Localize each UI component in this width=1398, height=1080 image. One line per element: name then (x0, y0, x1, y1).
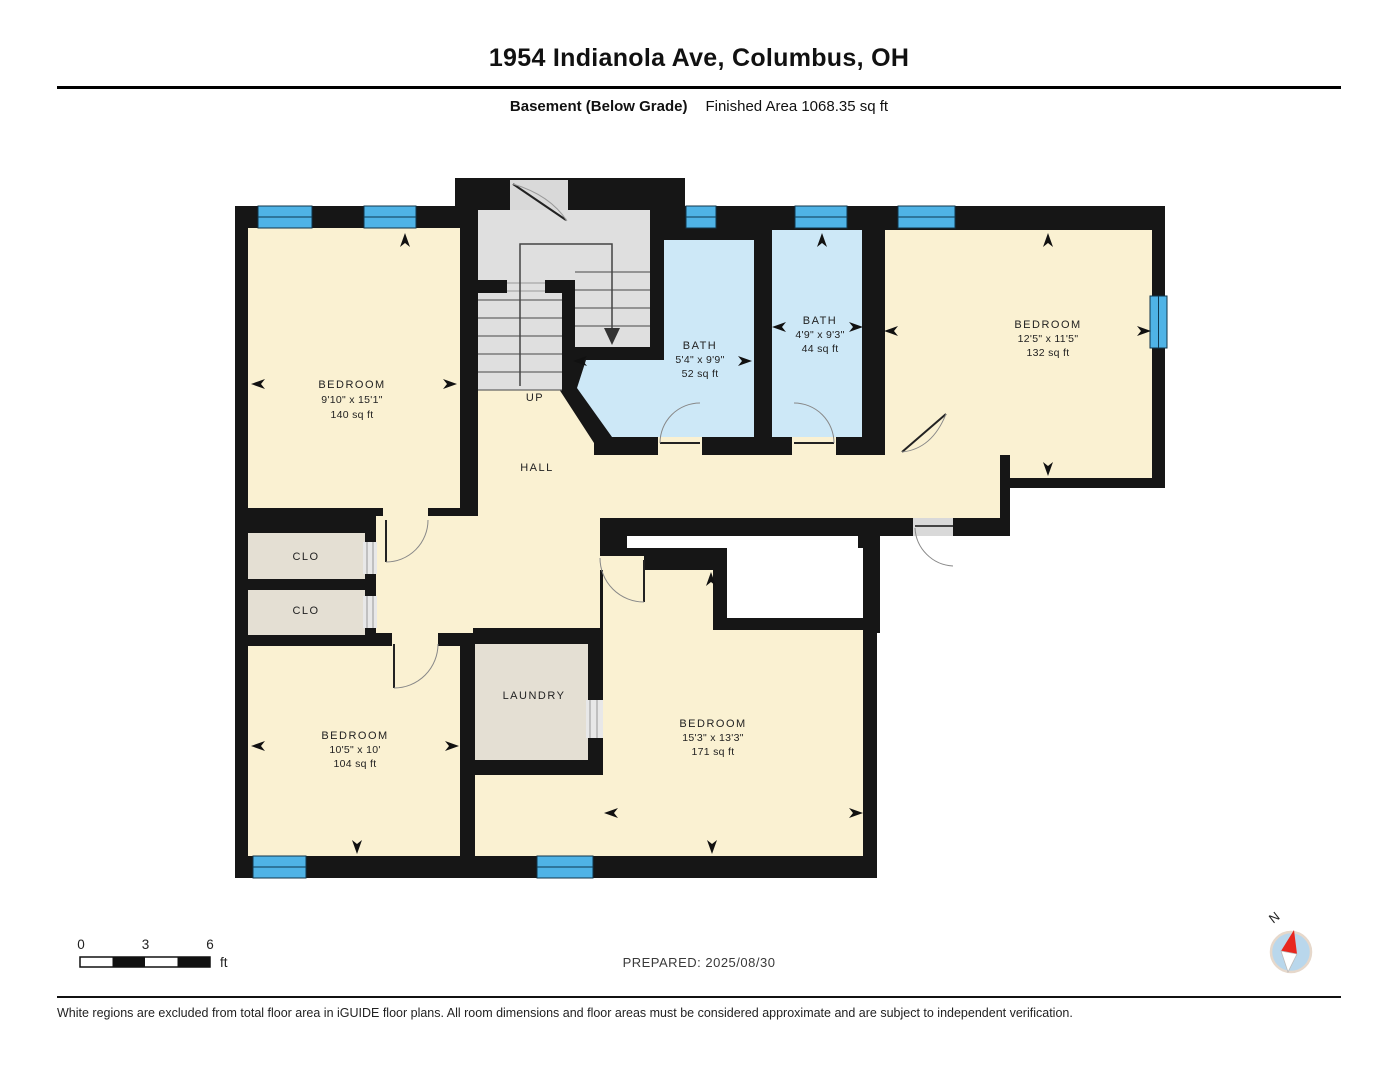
room-label-hall: HALL (520, 462, 554, 474)
room-hall-corridor (376, 516, 600, 633)
svg-text:12'5" x 11'5": 12'5" x 11'5" (1018, 333, 1079, 345)
compass: N (1266, 909, 1311, 972)
scale-bar: 0 3 6 ft (77, 937, 228, 970)
svg-text:BATH: BATH (803, 315, 838, 327)
floorplan-page: 1954 Indianola Ave, Columbus, OH Basemen… (0, 0, 1398, 1080)
room-label-closet-2: CLO (292, 605, 319, 617)
svg-text:BEDROOM: BEDROOM (321, 730, 388, 742)
svg-text:BEDROOM: BEDROOM (1014, 319, 1081, 331)
room-laundry (475, 644, 588, 760)
svg-text:10'5" x 10': 10'5" x 10' (329, 744, 380, 756)
scale-tick-3: 3 (142, 937, 150, 952)
svg-text:104 sq ft: 104 sq ft (334, 758, 377, 770)
room-bedroom-tl (248, 228, 460, 508)
svg-text:BATH: BATH (683, 340, 718, 352)
room-label-closet-1: CLO (292, 551, 319, 563)
svg-text:44 sq ft: 44 sq ft (802, 343, 839, 355)
room-label-bath-1: BATH 5'4" x 9'9" 52 sq ft (675, 340, 724, 380)
floorplan-canvas: BEDROOM 9'10" x 15'1" 140 sq ft BATH 5'4… (0, 0, 1398, 1080)
svg-text:9'10" x 15'1": 9'10" x 15'1" (321, 394, 383, 406)
svg-text:4'9" x 9'3": 4'9" x 9'3" (795, 329, 844, 341)
room-label-bath-2: BATH 4'9" x 9'3" 44 sq ft (795, 315, 844, 355)
footer-disclaimer: White regions are excluded from total fl… (57, 1006, 1073, 1020)
footer-rule (57, 996, 1341, 998)
compass-north-label: N (1266, 909, 1283, 927)
svg-text:132 sq ft: 132 sq ft (1027, 347, 1070, 359)
svg-text:BEDROOM: BEDROOM (679, 718, 746, 730)
svg-text:140 sq ft: 140 sq ft (331, 409, 374, 421)
scale-tick-6: 6 (206, 937, 214, 952)
svg-text:BEDROOM: BEDROOM (318, 379, 385, 391)
prepared-date: PREPARED: 2025/08/30 (623, 955, 776, 970)
svg-text:15'3" x 13'3": 15'3" x 13'3" (682, 732, 744, 744)
svg-text:52 sq ft: 52 sq ft (682, 368, 719, 380)
room-label-laundry: LAUNDRY (503, 690, 566, 702)
scale-tick-0: 0 (77, 937, 85, 952)
svg-text:5'4" x 9'9": 5'4" x 9'9" (675, 354, 724, 366)
scale-unit: ft (220, 955, 228, 970)
room-label-up: UP (526, 392, 544, 404)
svg-text:171 sq ft: 171 sq ft (692, 746, 735, 758)
